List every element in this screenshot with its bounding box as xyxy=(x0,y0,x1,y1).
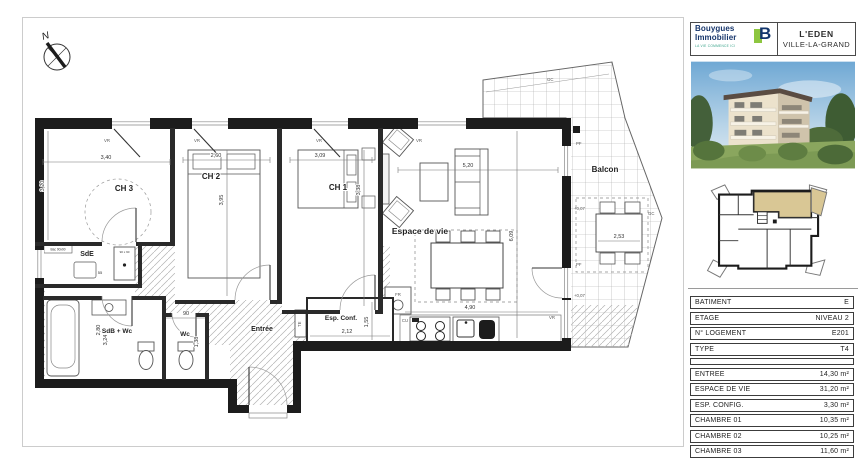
dim-esp-conf-width: 2,12 xyxy=(342,329,353,335)
project-name: L'EDEN xyxy=(799,29,833,39)
level-tag: +0,07 xyxy=(574,206,585,211)
dim-shower-size: 90 x 90 xyxy=(120,250,130,254)
project-city: VILLE-LA-GRAND xyxy=(783,40,850,49)
dim-ch2-width: 2,60 xyxy=(211,153,222,159)
balcony: 2,53 Balcon GC GC +0,07 +0,07 PF PF xyxy=(483,62,662,347)
vr-tag: VR xyxy=(549,315,555,320)
table-row: ETAGENIVEAU 2 xyxy=(690,312,854,325)
balcony-label: Balcon xyxy=(592,165,619,174)
dim-sde: 55 xyxy=(98,270,103,275)
project-title-block: L'EDEN VILLE-LA-GRAND xyxy=(777,23,855,55)
gc-tag: GC xyxy=(547,77,553,82)
table-row: CHAMBRE 0110,35 m² xyxy=(690,414,854,427)
dim-ch1-width: 3,09 xyxy=(315,153,326,159)
floor-plan-sheet: N 2,53 Balcon GC GC +0,07 +0,07 xyxy=(0,0,860,463)
dim-ch1-depth: 3,38 xyxy=(356,185,362,196)
key-plan xyxy=(695,183,845,283)
room-label-esp-conf: Esp. Conf. xyxy=(325,315,357,322)
dim-sdb-depth: 3,24 xyxy=(103,335,109,346)
balcony-table-dim: 2,53 xyxy=(614,234,625,240)
header-box: Bouygues Immobilier LA VIE COMMENCE ICI … xyxy=(690,22,856,56)
table-row: TYPET4 xyxy=(690,343,854,356)
vr-tag: VR xyxy=(316,138,322,143)
table-row: CHAMBRE 0210,25 m² xyxy=(690,430,854,443)
level-tag: +0,07 xyxy=(574,293,585,298)
table-row: ESP. CONFIG.3,30 m² xyxy=(690,399,854,412)
info-panel: Bouygues Immobilier LA VIE COMMENCE ICI … xyxy=(688,0,860,463)
dim-esp-conf-depth: 1,55 xyxy=(364,317,370,328)
room-label-ch1: CH 1 xyxy=(329,183,348,192)
room-label-wc: Wc xyxy=(180,331,190,338)
vr-tag: VR xyxy=(416,138,422,143)
gc-tag: GC xyxy=(648,211,654,216)
vr-tag: VR xyxy=(194,138,200,143)
dim-kitchen-width: 4,90 xyxy=(465,305,476,311)
table-row: CHAMBRE 0311,60 m² xyxy=(690,445,854,458)
dim-wc-width: 90 xyxy=(183,311,189,317)
pf-tag: PF xyxy=(576,141,582,146)
table-row: ENTREE14,30 m² xyxy=(690,368,854,381)
pf-tag: PF xyxy=(576,262,582,267)
fr-tag: FR xyxy=(395,292,401,297)
cu-tag: CU xyxy=(402,318,408,323)
north-compass-icon: N xyxy=(41,30,70,70)
unit-info-table: BATIMENTE ETAGENIVEAU 2 N° LOGEMENTE201 … xyxy=(690,296,854,461)
dim-shower-label: Bac 90x90 xyxy=(50,248,65,252)
dim-living-width: 5,20 xyxy=(463,163,474,169)
te-tag: TE xyxy=(297,321,302,327)
dim-ch3-depth: 3,20 xyxy=(40,181,46,192)
dim-living-depth: 6,09 xyxy=(509,231,515,242)
table-row: N° LOGEMENTE201 xyxy=(690,327,854,340)
dim-ch3-width: 3,40 xyxy=(101,155,112,161)
room-label-sdb-wc: SdB + Wc xyxy=(102,328,133,335)
table-spacer-row xyxy=(690,358,854,365)
floor-plan-drawing: N 2,53 Balcon GC GC +0,07 +0,07 xyxy=(0,0,688,463)
table-row: ESPACE DE VIE31,20 m² xyxy=(690,383,854,396)
building-photo xyxy=(691,60,855,170)
table-row: BATIMENTE xyxy=(690,296,854,309)
room-label-ch2: CH 2 xyxy=(202,172,221,181)
vr-tag: VR xyxy=(104,138,110,143)
panel-divider xyxy=(688,288,858,289)
room-label-living: Espace de vie xyxy=(392,226,449,236)
dim-wc-depth: 1,38 xyxy=(194,337,200,348)
room-label-entrance: Entrée xyxy=(251,326,273,333)
north-label: N xyxy=(41,30,52,43)
brand-block: Bouygues Immobilier LA VIE COMMENCE ICI … xyxy=(691,23,777,55)
floor-plan-area: N 2,53 Balcon GC GC +0,07 +0,07 xyxy=(0,0,688,463)
brand-logo-icon: B xyxy=(754,26,774,46)
dim-ch2-depth: 3,95 xyxy=(219,195,225,206)
room-label-sde: SdE xyxy=(80,251,94,258)
room-label-ch3: CH 3 xyxy=(115,184,134,193)
